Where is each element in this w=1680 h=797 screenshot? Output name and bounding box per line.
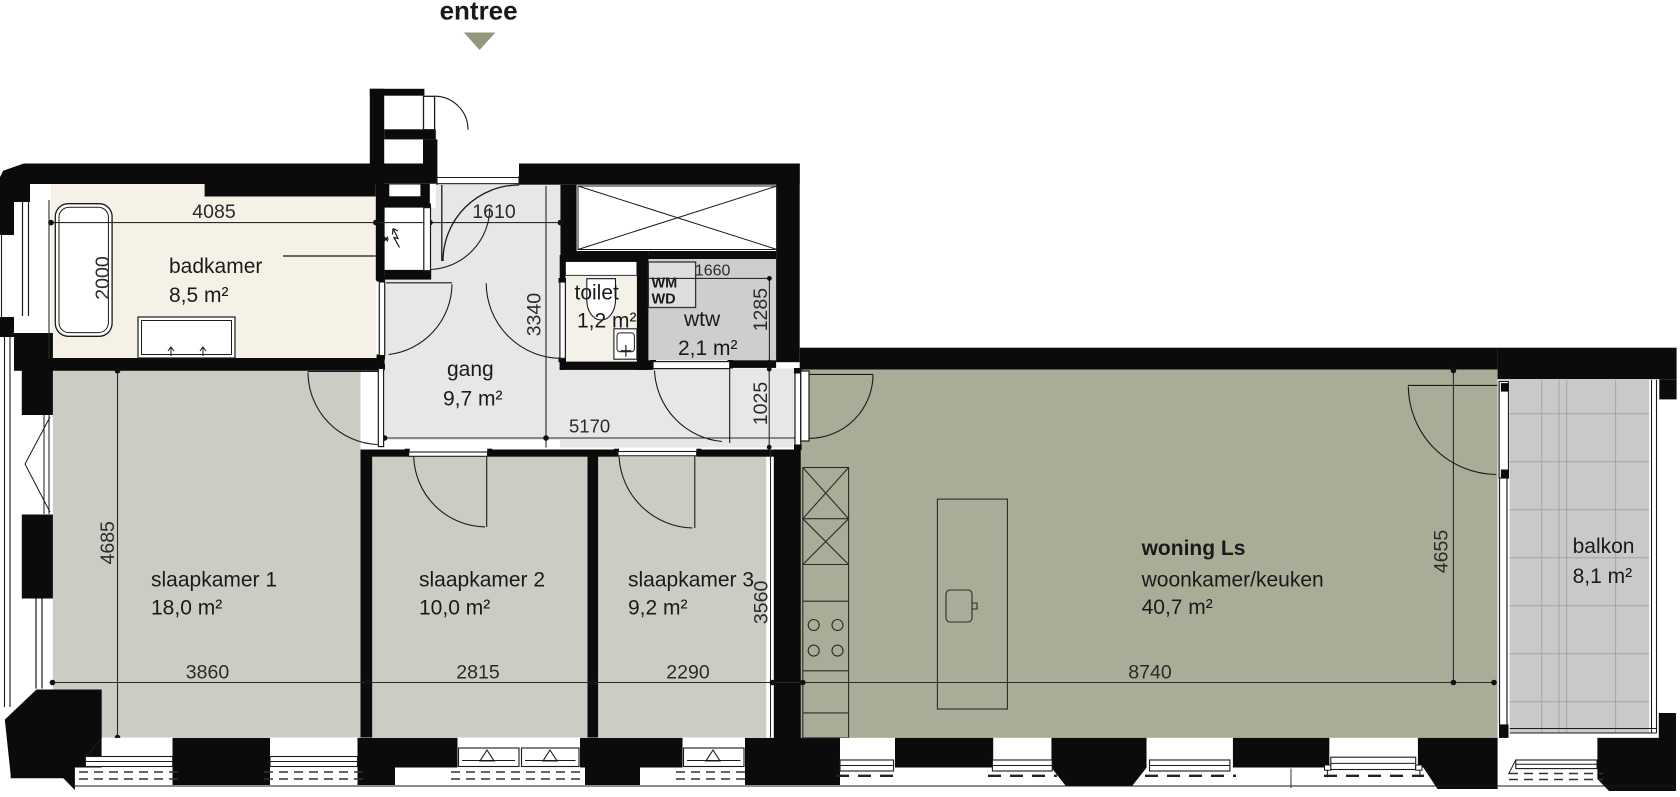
svg-text:toilet: toilet (575, 282, 620, 305)
svg-text:1660: 1660 (695, 262, 731, 279)
svg-text:40,7 m²: 40,7 m² (1142, 596, 1213, 619)
svg-text:3560: 3560 (750, 581, 772, 625)
svg-text:4685: 4685 (97, 521, 119, 565)
svg-text:WD: WD (652, 292, 676, 308)
svg-text:9,2 m²: 9,2 m² (628, 597, 688, 620)
svg-text:3340: 3340 (523, 293, 545, 337)
svg-text:1285: 1285 (750, 288, 772, 332)
svg-text:woonkamer/keuken: woonkamer/keuken (1141, 569, 1324, 592)
svg-text:5170: 5170 (569, 416, 610, 437)
svg-text:badkamer: badkamer (169, 255, 262, 278)
svg-text:slaapkamer 1: slaapkamer 1 (151, 569, 277, 592)
svg-text:slaapkamer 3: slaapkamer 3 (628, 569, 754, 592)
svg-text:10,0 m²: 10,0 m² (419, 597, 490, 620)
svg-text:gang: gang (447, 358, 494, 381)
svg-text:4085: 4085 (192, 201, 236, 223)
svg-text:1610: 1610 (472, 201, 516, 223)
svg-text:woning Ls: woning Ls (1141, 537, 1246, 560)
svg-text:1025: 1025 (750, 382, 772, 426)
svg-text:4655: 4655 (1430, 530, 1452, 574)
svg-text:3860: 3860 (186, 662, 230, 684)
svg-text:2290: 2290 (666, 662, 710, 684)
svg-text:18,0 m²: 18,0 m² (151, 597, 222, 620)
svg-text:1,2 m²: 1,2 m² (577, 310, 637, 333)
svg-text:9,7 m²: 9,7 m² (443, 388, 503, 411)
svg-text:slaapkamer 2: slaapkamer 2 (419, 569, 545, 592)
svg-text:entree: entree (440, 0, 518, 26)
svg-text:2815: 2815 (456, 662, 500, 684)
svg-text:2000: 2000 (92, 256, 114, 300)
svg-text:wtw: wtw (683, 308, 721, 331)
svg-text:8740: 8740 (1128, 662, 1172, 684)
svg-text:8,1 m²: 8,1 m² (1573, 565, 1633, 588)
svg-text:8,5 m²: 8,5 m² (169, 284, 229, 307)
svg-text:2,1 m²: 2,1 m² (678, 337, 738, 360)
svg-text:balkon: balkon (1573, 535, 1635, 558)
